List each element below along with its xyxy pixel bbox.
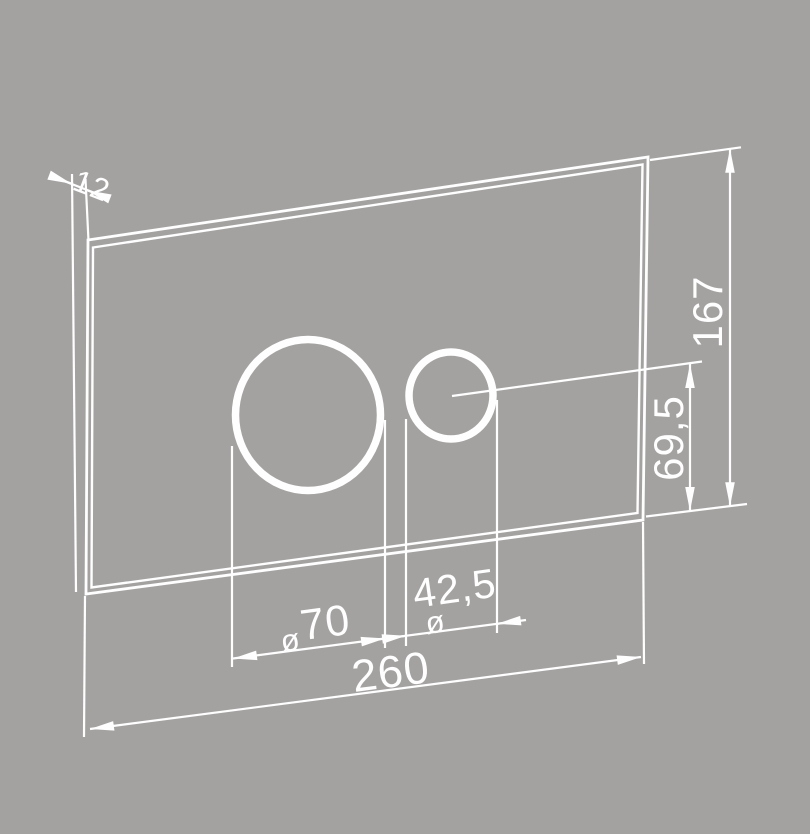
ext-width-left <box>84 596 85 737</box>
large-hole-value: 70 <box>298 596 354 650</box>
dim-width-label: 260 <box>349 641 433 702</box>
drawing-canvas: 12 167 69,5 260 ø70 42,5 ø <box>0 0 810 834</box>
dim-center-height-label: 69,5 <box>645 395 692 481</box>
dim-height-label: 167 <box>684 275 731 348</box>
technical-drawing: 12 167 69,5 260 ø70 42,5 ø <box>0 0 810 834</box>
ext-width-right <box>643 522 644 664</box>
